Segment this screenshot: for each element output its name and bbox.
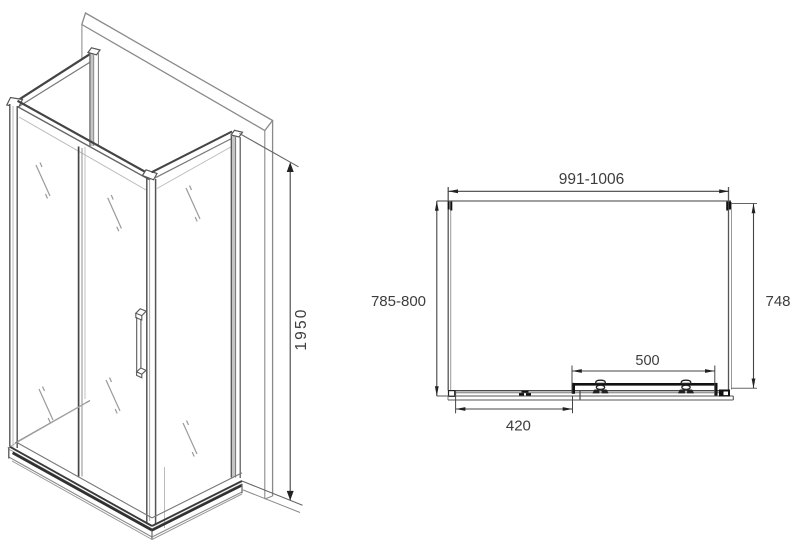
svg-text:748: 748 (765, 293, 790, 310)
svg-text:991-1006: 991-1006 (559, 171, 625, 188)
svg-text:420: 420 (506, 418, 531, 435)
svg-text:500: 500 (635, 353, 659, 369)
svg-text:1950: 1950 (293, 307, 310, 350)
svg-text:785-800: 785-800 (371, 293, 426, 310)
